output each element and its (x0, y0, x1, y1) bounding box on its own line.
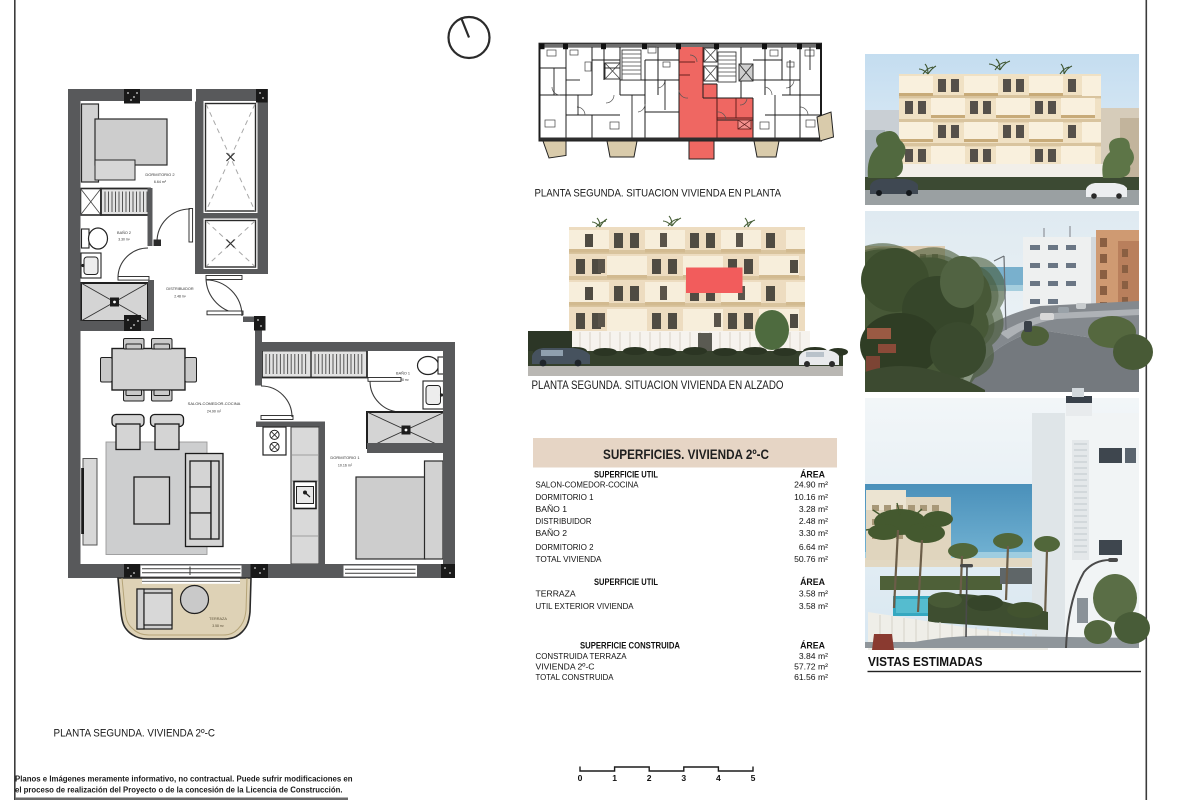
svg-text:24.90 m²: 24.90 m² (207, 410, 222, 414)
svg-text:BAÑO 2: BAÑO 2 (536, 528, 568, 538)
svg-text:ÁREA: ÁREA (800, 470, 826, 480)
svg-text:VISTAS ESTIMADAS: VISTAS ESTIMADAS (868, 654, 983, 669)
svg-text:DORMITORIO 2: DORMITORIO 2 (145, 172, 175, 177)
svg-text:TOTAL VIVIENDA: TOTAL VIVIENDA (536, 554, 602, 564)
svg-text:3.30 m²: 3.30 m² (799, 528, 828, 538)
svg-text:PLANTA SEGUNDA. SITUACION VIVI: PLANTA SEGUNDA. SITUACION VIVIENDA EN PL… (535, 188, 782, 200)
svg-text:SUPERFICIE UTIL: SUPERFICIE UTIL (594, 577, 659, 587)
svg-text:TOTAL CONSTRUIDA: TOTAL CONSTRUIDA (536, 672, 614, 682)
svg-text:5: 5 (751, 773, 756, 783)
svg-text:6.64 m²: 6.64 m² (154, 180, 167, 184)
svg-text:DORMITORIO 2: DORMITORIO 2 (536, 542, 594, 552)
svg-text:3.58 m²: 3.58 m² (799, 601, 828, 611)
svg-text:4: 4 (716, 773, 721, 783)
svg-text:PLANTA SEGUNDA. VIVIENDA 2º-C: PLANTA SEGUNDA. VIVIENDA 2º-C (54, 728, 216, 740)
svg-text:3.58 m²: 3.58 m² (212, 624, 224, 628)
svg-text:3: 3 (681, 773, 686, 783)
svg-text:0: 0 (578, 773, 583, 783)
svg-text:DORMITORIO 1: DORMITORIO 1 (536, 492, 594, 502)
svg-text:SUPERFICIES. VIVIENDA 2º-C: SUPERFICIES. VIVIENDA 2º-C (603, 447, 769, 462)
svg-text:UTIL EXTERIOR VIVIENDA: UTIL EXTERIOR VIVIENDA (536, 601, 634, 611)
svg-text:TERRAZA: TERRAZA (536, 588, 576, 598)
svg-text:2: 2 (647, 773, 652, 783)
svg-text:PLANTA SEGUNDA. SITUACION VIVI: PLANTA SEGUNDA. SITUACION VIVIENDA EN AL… (532, 380, 784, 392)
svg-text:CONSTRUIDA TERRAZA: CONSTRUIDA TERRAZA (536, 651, 627, 661)
svg-text:50.76 m²: 50.76 m² (794, 554, 828, 564)
svg-text:BAÑO 2: BAÑO 2 (117, 230, 131, 235)
svg-text:SUPERFICIE CONSTRUIDA: SUPERFICIE CONSTRUIDA (580, 640, 681, 650)
svg-text:TERRAZA: TERRAZA (209, 617, 227, 621)
svg-text:3.30 m²: 3.30 m² (118, 238, 130, 242)
svg-text:Planos e Imágenes meramente in: Planos e Imágenes meramente informativo,… (15, 774, 353, 784)
svg-text:2.48 m²: 2.48 m² (174, 295, 186, 299)
svg-text:2.48 m²: 2.48 m² (799, 516, 828, 526)
svg-text:24.90 m²: 24.90 m² (794, 480, 828, 490)
svg-text:1: 1 (612, 773, 617, 783)
svg-text:3.84 m²: 3.84 m² (799, 651, 828, 661)
svg-text:61.56 m²: 61.56 m² (794, 672, 828, 682)
svg-text:10.16 m²: 10.16 m² (794, 492, 828, 502)
svg-text:57.72 m²: 57.72 m² (794, 662, 828, 672)
svg-text:3.58 m²: 3.58 m² (799, 588, 828, 598)
svg-text:BAÑO 1: BAÑO 1 (536, 504, 568, 514)
svg-text:BAÑO 1: BAÑO 1 (396, 371, 410, 376)
svg-text:3.28 m²: 3.28 m² (799, 504, 828, 514)
svg-text:DORMITORIO 1: DORMITORIO 1 (330, 455, 360, 460)
svg-text:SALON-COMEDOR-COCINA: SALON-COMEDOR-COCINA (536, 480, 639, 490)
svg-text:SUPERFICIE UTIL: SUPERFICIE UTIL (594, 470, 659, 480)
svg-text:DISTRIBUIDOR: DISTRIBUIDOR (166, 287, 193, 291)
svg-text:VIVIENDA 2º-C: VIVIENDA 2º-C (536, 662, 595, 672)
svg-text:DISTRIBUIDOR: DISTRIBUIDOR (536, 516, 592, 526)
svg-text:6.64 m²: 6.64 m² (799, 542, 828, 552)
svg-text:ÁREA: ÁREA (800, 640, 826, 650)
svg-text:ÁREA: ÁREA (800, 577, 826, 587)
svg-text:SALON-COMEDOR-COCINA: SALON-COMEDOR-COCINA (188, 401, 241, 406)
svg-text:el proceso de realización del: el proceso de realización del Proyecto o… (15, 785, 343, 795)
svg-text:10.16 m²: 10.16 m² (338, 464, 353, 468)
